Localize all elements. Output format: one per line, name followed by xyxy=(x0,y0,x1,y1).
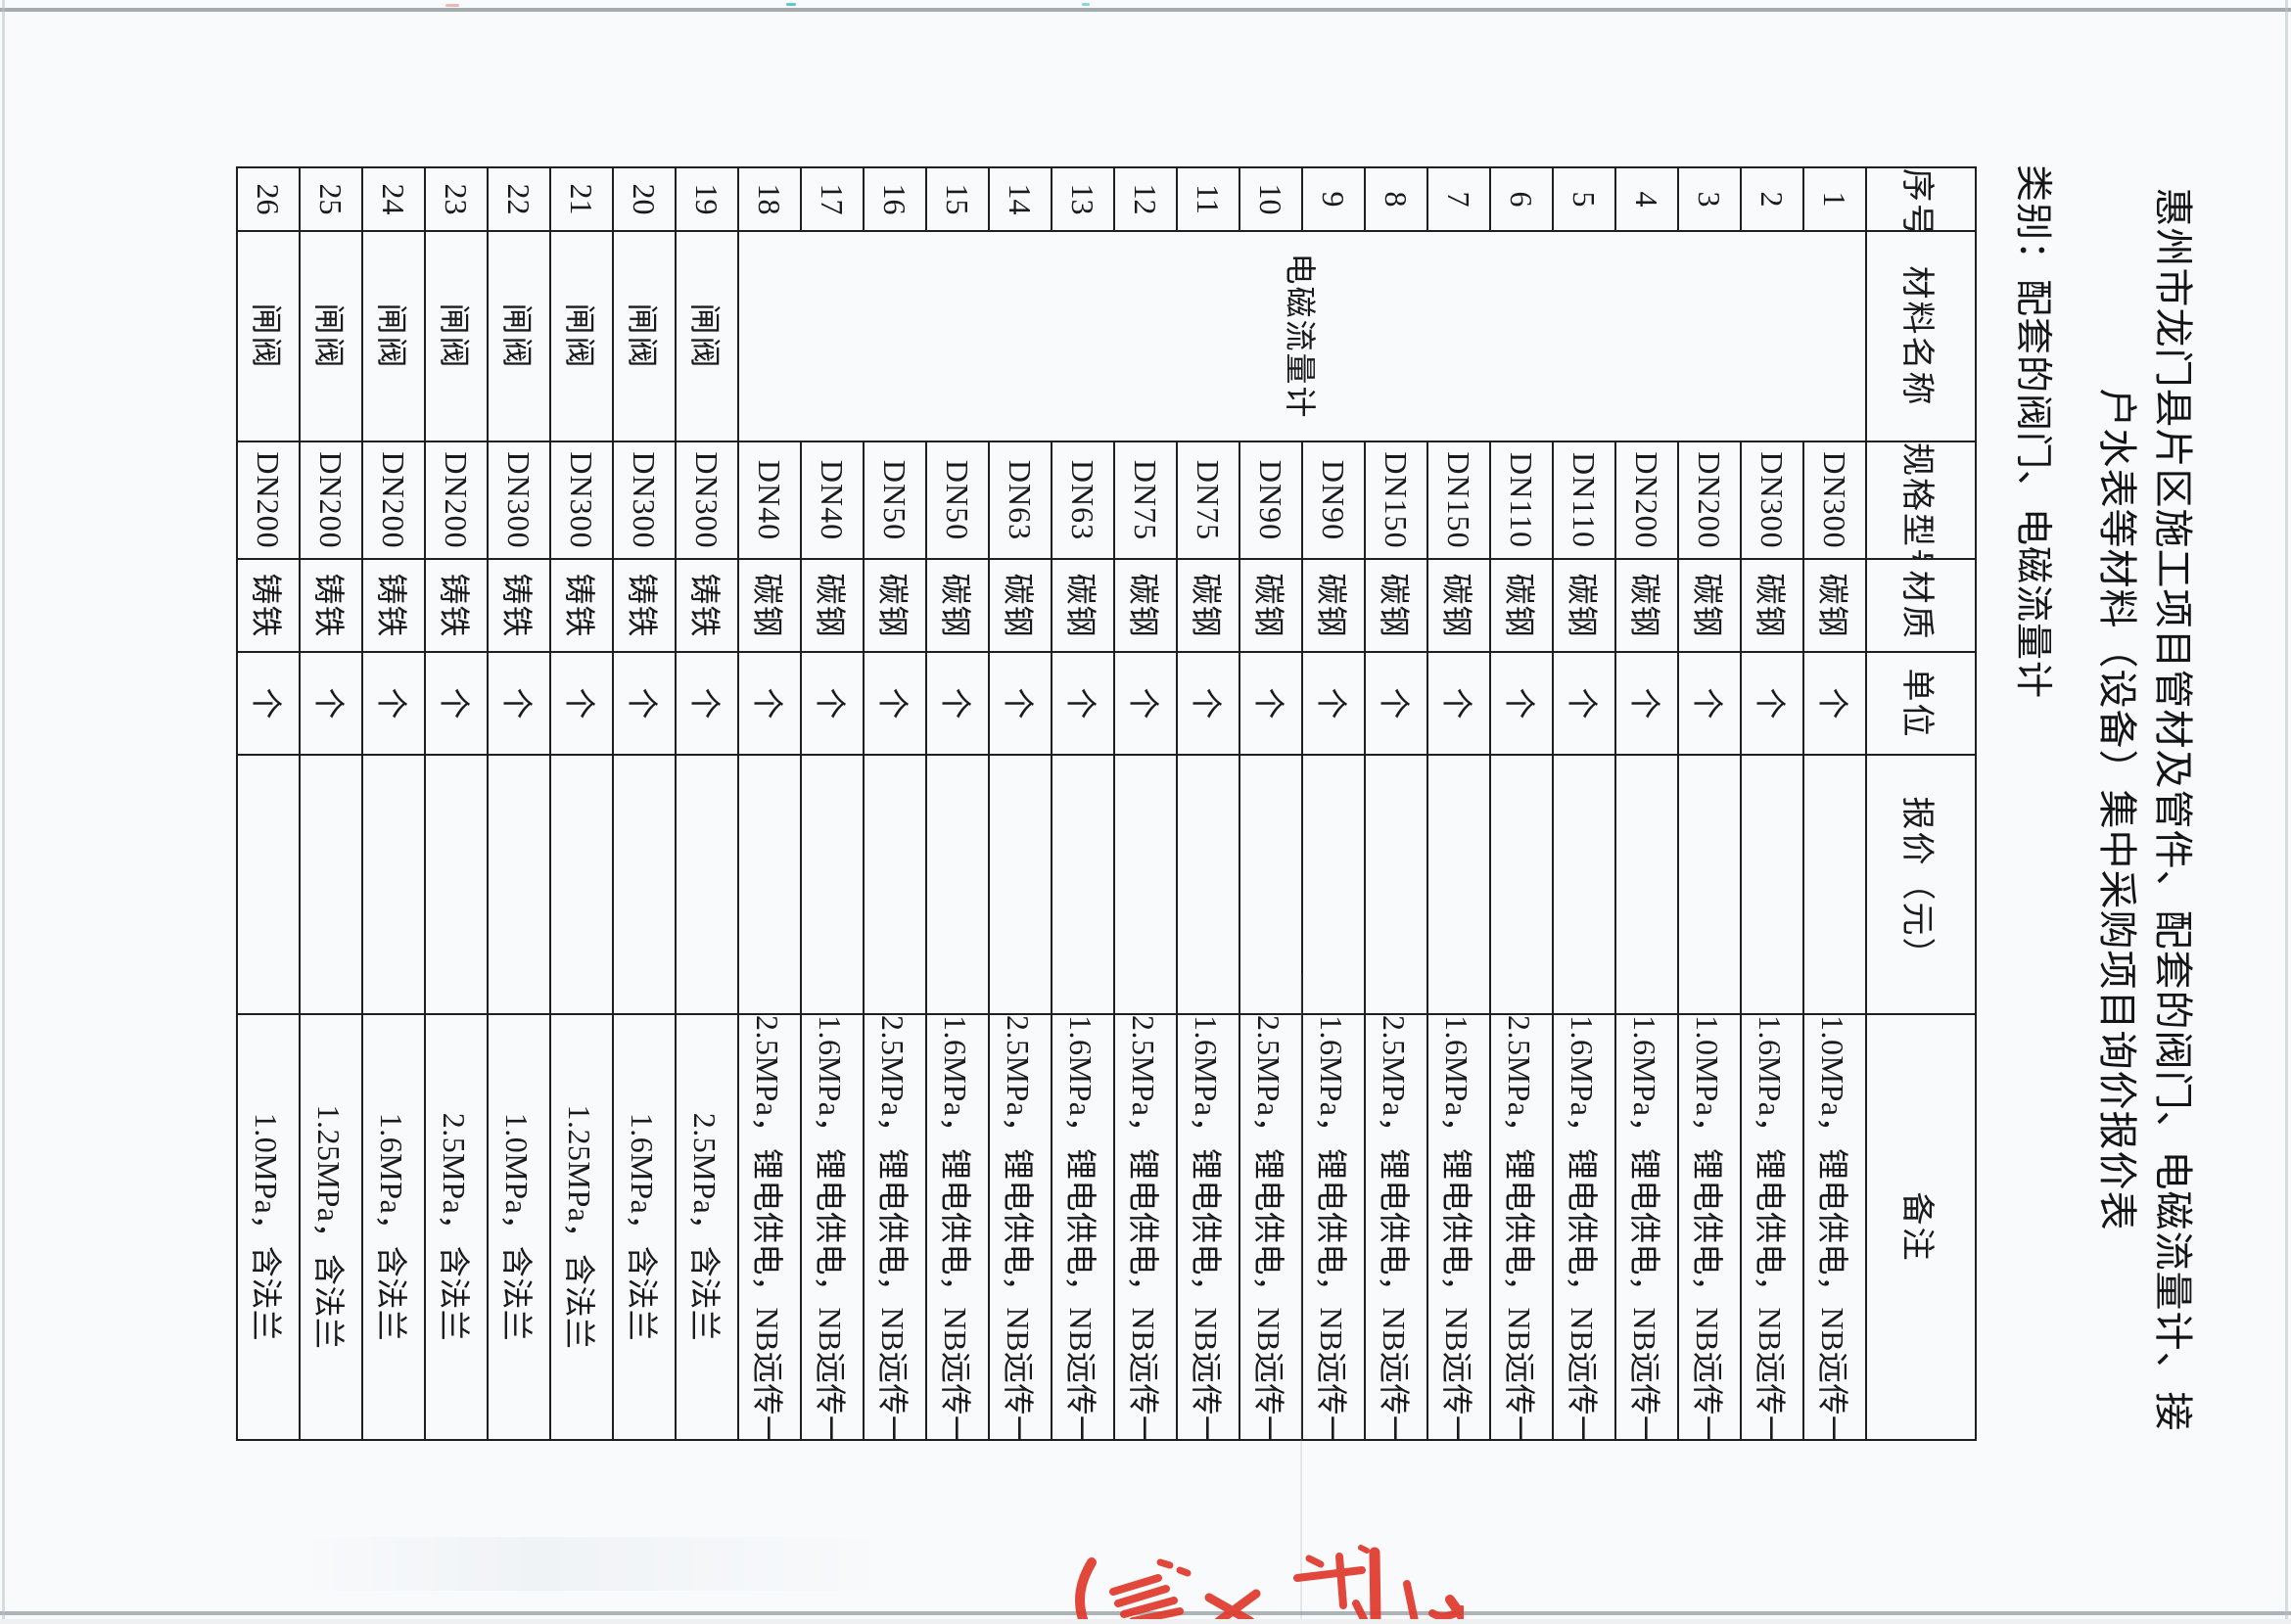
scanned-paper: 惠州市龙门县片区施工项目管材及管件、配套的阀门、电磁流量计、接 户水表等材料（设… xyxy=(0,0,2291,1619)
header-unit: 单位 xyxy=(1866,652,1976,755)
cell-material: 碳钢 xyxy=(1052,559,1114,652)
cell-seq: 15 xyxy=(926,167,989,231)
scan-speck-cyan-2 xyxy=(1082,3,1090,6)
cell-seq: 18 xyxy=(738,167,801,231)
cell-remark: 2.5MPa，锂电供电，NB远传一体式 xyxy=(989,1014,1052,1440)
cell-material: 碳钢 xyxy=(1239,559,1302,652)
cell-unit: 个 xyxy=(488,652,550,755)
cell-price xyxy=(237,755,300,1014)
red-stamp-strokes xyxy=(1062,1545,1464,1619)
cell-price xyxy=(989,755,1052,1014)
cell-price xyxy=(1803,755,1866,1014)
cell-spec: DN50 xyxy=(926,441,989,559)
cell-spec: DN200 xyxy=(1678,441,1741,559)
cell-material: 铸铁 xyxy=(425,559,488,652)
header-seq: 序号 xyxy=(1866,167,1976,231)
scan-edge-top xyxy=(0,8,2291,12)
cell-seq: 17 xyxy=(801,167,864,231)
cell-price xyxy=(738,755,801,1014)
paper-crease xyxy=(1300,974,1302,1619)
cell-seq: 12 xyxy=(1114,167,1177,231)
cell-material-name-merged: 电磁流量计 xyxy=(738,231,1866,441)
cell-spec: DN75 xyxy=(1114,441,1177,559)
cell-material: 铸铁 xyxy=(300,559,362,652)
scan-speck-cyan-1 xyxy=(786,3,796,6)
cell-spec: DN300 xyxy=(550,441,613,559)
cell-remark: 1.6MPa，锂电供电，NB远传一体式 xyxy=(1427,1014,1490,1440)
table-body: 1电磁流量计DN300碳钢个1.0MPa，锂电供电，NB远传一体式2DN300碳… xyxy=(237,167,1866,1440)
cell-material: 碳钢 xyxy=(738,559,801,652)
cell-unit: 个 xyxy=(550,652,613,755)
cell-remark: 1.6MPa，锂电供电，NB远传一体式 xyxy=(1177,1014,1239,1440)
cell-unit: 个 xyxy=(1490,652,1553,755)
cell-price xyxy=(676,755,738,1014)
cell-unit: 个 xyxy=(801,652,864,755)
document-page: 惠州市龙门县片区施工项目管材及管件、配套的阀门、电磁流量计、接 户水表等材料（设… xyxy=(0,0,2291,1619)
cell-remark: 2.5MPa，锂电供电，NB远传一体式 xyxy=(738,1014,801,1440)
header-material-name: 材料名称 xyxy=(1866,231,1976,441)
cell-seq: 23 xyxy=(425,167,488,231)
cell-material: 碳钢 xyxy=(1803,559,1866,652)
cell-spec: DN150 xyxy=(1427,441,1490,559)
cell-unit: 个 xyxy=(613,652,676,755)
cell-remark: 2.5MPa，锂电供电，NB远传一体式 xyxy=(1114,1014,1177,1440)
cell-spec: DN200 xyxy=(425,441,488,559)
cell-remark: 1.6MPa，锂电供电，NB远传一体式 xyxy=(1302,1014,1365,1440)
cell-spec: DN110 xyxy=(1490,441,1553,559)
cell-seq: 2 xyxy=(1741,167,1803,231)
cell-unit: 个 xyxy=(1239,652,1302,755)
cell-seq: 21 xyxy=(550,167,613,231)
cell-material-name: 闸阀 xyxy=(488,231,550,441)
header-spec: 规格型号 xyxy=(1866,441,1976,559)
cell-seq: 3 xyxy=(1678,167,1741,231)
cell-spec: DN150 xyxy=(1365,441,1427,559)
cell-price xyxy=(1177,755,1239,1014)
cell-spec: DN40 xyxy=(738,441,801,559)
cell-price xyxy=(1678,755,1741,1014)
scan-edge-right xyxy=(2285,0,2288,1619)
cell-material-name: 闸阀 xyxy=(362,231,425,441)
cell-price xyxy=(488,755,550,1014)
cell-remark: 1.6MPa，含法兰 xyxy=(362,1014,425,1440)
document-title-line-2: 户水表等材料（设备）集中采购项目询价报价表 xyxy=(2089,0,2145,1619)
table-header-row: 序号 材料名称 规格型号 材质 单位 报价（元） 备注 xyxy=(1866,167,1976,1440)
cell-material-name: 闸阀 xyxy=(676,231,738,441)
cell-unit: 个 xyxy=(1365,652,1427,755)
cell-unit: 个 xyxy=(1615,652,1678,755)
cell-seq: 9 xyxy=(1302,167,1365,231)
cell-seq: 20 xyxy=(613,167,676,231)
cell-price xyxy=(550,755,613,1014)
cell-unit: 个 xyxy=(1803,652,1866,755)
cell-seq: 4 xyxy=(1615,167,1678,231)
cell-spec: DN75 xyxy=(1177,441,1239,559)
cell-remark: 1.0MPa，锂电供电，NB远传一体式 xyxy=(1678,1014,1741,1440)
cell-price xyxy=(926,755,989,1014)
cell-price xyxy=(613,755,676,1014)
cell-remark: 1.6MPa，锂电供电，NB远传一体式 xyxy=(1553,1014,1615,1440)
cell-spec: DN200 xyxy=(237,441,300,559)
cell-price xyxy=(1427,755,1490,1014)
cell-material: 碳钢 xyxy=(1553,559,1615,652)
cell-unit: 个 xyxy=(738,652,801,755)
cell-material: 铸铁 xyxy=(676,559,738,652)
cell-remark: 1.0MPa，含法兰 xyxy=(488,1014,550,1440)
cell-material: 碳钢 xyxy=(989,559,1052,652)
scan-smudge xyxy=(294,1537,901,1591)
cell-spec: DN300 xyxy=(488,441,550,559)
cell-remark: 2.5MPa，含法兰 xyxy=(425,1014,488,1440)
cell-unit: 个 xyxy=(362,652,425,755)
cell-seq: 26 xyxy=(237,167,300,231)
cell-remark: 2.5MPa，锂电供电，NB远传一体式 xyxy=(864,1014,926,1440)
cell-material: 碳钢 xyxy=(1615,559,1678,652)
cell-material-name: 闸阀 xyxy=(300,231,362,441)
cell-price xyxy=(1239,755,1302,1014)
cell-material: 碳钢 xyxy=(1741,559,1803,652)
cell-spec: DN50 xyxy=(864,441,926,559)
cell-spec: DN300 xyxy=(1803,441,1866,559)
cell-price xyxy=(1052,755,1114,1014)
cell-material-name: 闸阀 xyxy=(237,231,300,441)
cell-remark: 2.5MPa，含法兰 xyxy=(676,1014,738,1440)
cell-seq: 11 xyxy=(1177,167,1239,231)
cell-unit: 个 xyxy=(1678,652,1741,755)
cell-material: 碳钢 xyxy=(1365,559,1427,652)
cell-unit: 个 xyxy=(1177,652,1239,755)
cell-unit: 个 xyxy=(1427,652,1490,755)
cell-remark: 2.5MPa，锂电供电，NB远传一体式 xyxy=(1490,1014,1553,1440)
header-material: 材质 xyxy=(1866,559,1976,652)
cell-spec: DN90 xyxy=(1239,441,1302,559)
cell-remark: 1.25MPa，含法兰 xyxy=(550,1014,613,1440)
cell-seq: 7 xyxy=(1427,167,1490,231)
cell-material: 铸铁 xyxy=(237,559,300,652)
cell-spec: DN300 xyxy=(613,441,676,559)
cell-price xyxy=(864,755,926,1014)
cell-remark: 1.6MPa，锂电供电，NB远传一体式 xyxy=(926,1014,989,1440)
cell-remark: 1.0MPa，锂电供电，NB远传一体式 xyxy=(1803,1014,1866,1440)
cell-remark: 2.5MPa，锂电供电，NB远传一体式 xyxy=(1365,1014,1427,1440)
cell-material: 碳钢 xyxy=(926,559,989,652)
cell-seq: 16 xyxy=(864,167,926,231)
cell-spec: DN40 xyxy=(801,441,864,559)
red-stamp-partial xyxy=(1062,1545,1464,1624)
cell-price xyxy=(801,755,864,1014)
table-row: 1电磁流量计DN300碳钢个1.0MPa，锂电供电，NB远传一体式 xyxy=(1803,167,1866,1440)
cell-material: 碳钢 xyxy=(801,559,864,652)
cell-material: 碳钢 xyxy=(1427,559,1490,652)
cell-seq: 22 xyxy=(488,167,550,231)
cell-material: 碳钢 xyxy=(1114,559,1177,652)
cell-unit: 个 xyxy=(1302,652,1365,755)
cell-seq: 1 xyxy=(1803,167,1866,231)
cell-seq: 14 xyxy=(989,167,1052,231)
cell-spec: DN63 xyxy=(989,441,1052,559)
cell-spec: DN300 xyxy=(676,441,738,559)
cell-price xyxy=(1302,755,1365,1014)
cell-spec: DN200 xyxy=(362,441,425,559)
cell-price xyxy=(1114,755,1177,1014)
header-remark: 备注 xyxy=(1866,1014,1976,1440)
cell-seq: 25 xyxy=(300,167,362,231)
cell-unit: 个 xyxy=(989,652,1052,755)
cell-unit: 个 xyxy=(1114,652,1177,755)
cell-remark: 2.5MPa，锂电供电，NB远传一体式 xyxy=(1239,1014,1302,1440)
scan-speck-red xyxy=(445,4,459,7)
cell-spec: DN300 xyxy=(1741,441,1803,559)
table-row: 24闸阀DN200铸铁个1.6MPa，含法兰 xyxy=(362,167,425,1440)
cell-remark: 1.6MPa，锂电供电，NB远传一体式 xyxy=(1052,1014,1114,1440)
cell-material: 碳钢 xyxy=(1177,559,1239,652)
cell-price xyxy=(1553,755,1615,1014)
cell-unit: 个 xyxy=(425,652,488,755)
cell-price xyxy=(1490,755,1553,1014)
cell-spec: DN200 xyxy=(1615,441,1678,559)
cell-unit: 个 xyxy=(1052,652,1114,755)
cell-spec: DN200 xyxy=(300,441,362,559)
cell-remark: 1.6MPa，含法兰 xyxy=(613,1014,676,1440)
cell-material-name: 闸阀 xyxy=(425,231,488,441)
cell-unit: 个 xyxy=(676,652,738,755)
cell-seq: 6 xyxy=(1490,167,1553,231)
cell-remark: 1.6MPa，锂电供电，NB远传一体式 xyxy=(801,1014,864,1440)
cell-unit: 个 xyxy=(926,652,989,755)
cell-material: 碳钢 xyxy=(1302,559,1365,652)
table-row: 23闸阀DN200铸铁个2.5MPa，含法兰 xyxy=(425,167,488,1440)
category-line: 类别：配套的阀门、电磁流量计 xyxy=(2010,164,2064,1619)
cell-material: 碳钢 xyxy=(1678,559,1741,652)
header-price: 报价（元） xyxy=(1866,755,1976,1014)
cell-material-name: 闸阀 xyxy=(613,231,676,441)
cell-seq: 8 xyxy=(1365,167,1427,231)
table-row: 21闸阀DN300铸铁个1.25MPa，含法兰 xyxy=(550,167,613,1440)
cell-seq: 10 xyxy=(1239,167,1302,231)
cell-unit: 个 xyxy=(864,652,926,755)
cell-spec: DN110 xyxy=(1553,441,1615,559)
cell-unit: 个 xyxy=(1741,652,1803,755)
cell-material-name: 闸阀 xyxy=(550,231,613,441)
cell-unit: 个 xyxy=(237,652,300,755)
cell-material: 铸铁 xyxy=(613,559,676,652)
cell-seq: 5 xyxy=(1553,167,1615,231)
cell-material: 碳钢 xyxy=(864,559,926,652)
cell-material: 铸铁 xyxy=(362,559,425,652)
table-row: 25闸阀DN200铸铁个1.25MPa，含法兰 xyxy=(300,167,362,1440)
table-row: 20闸阀DN300铸铁个1.6MPa，含法兰 xyxy=(613,167,676,1440)
cell-material: 碳钢 xyxy=(1490,559,1553,652)
cell-spec: DN63 xyxy=(1052,441,1114,559)
cell-unit: 个 xyxy=(300,652,362,755)
document-title-line-1: 惠州市龙门县片区施工项目管材及管件、配套的阀门、电磁流量计、接 xyxy=(2145,0,2291,1619)
cell-material: 铸铁 xyxy=(488,559,550,652)
quotation-table: 序号 材料名称 规格型号 材质 单位 报价（元） 备注 1电磁流量计DN300碳… xyxy=(236,166,1977,1441)
cell-seq: 24 xyxy=(362,167,425,231)
table-row: 26闸阀DN200铸铁个1.0MPa，含法兰 xyxy=(237,167,300,1440)
table-row: 19闸阀DN300铸铁个2.5MPa，含法兰 xyxy=(676,167,738,1440)
cell-unit: 个 xyxy=(1553,652,1615,755)
cell-seq: 19 xyxy=(676,167,738,231)
cell-price xyxy=(425,755,488,1014)
cell-remark: 1.6MPa，锂电供电，NB远传一体式 xyxy=(1741,1014,1803,1440)
cell-price xyxy=(1741,755,1803,1014)
cell-price xyxy=(1615,755,1678,1014)
cell-remark: 1.6MPa，锂电供电，NB远传一体式 xyxy=(1615,1014,1678,1440)
cell-spec: DN90 xyxy=(1302,441,1365,559)
cell-price xyxy=(362,755,425,1014)
cell-seq: 13 xyxy=(1052,167,1114,231)
cell-price xyxy=(1365,755,1427,1014)
cell-price xyxy=(300,755,362,1014)
scan-edge-left xyxy=(2,0,5,1619)
cell-material: 铸铁 xyxy=(550,559,613,652)
cell-remark: 1.25MPa，含法兰 xyxy=(300,1014,362,1440)
cell-remark: 1.0MPa，含法兰 xyxy=(237,1014,300,1440)
table-row: 22闸阀DN300铸铁个1.0MPa，含法兰 xyxy=(488,167,550,1440)
